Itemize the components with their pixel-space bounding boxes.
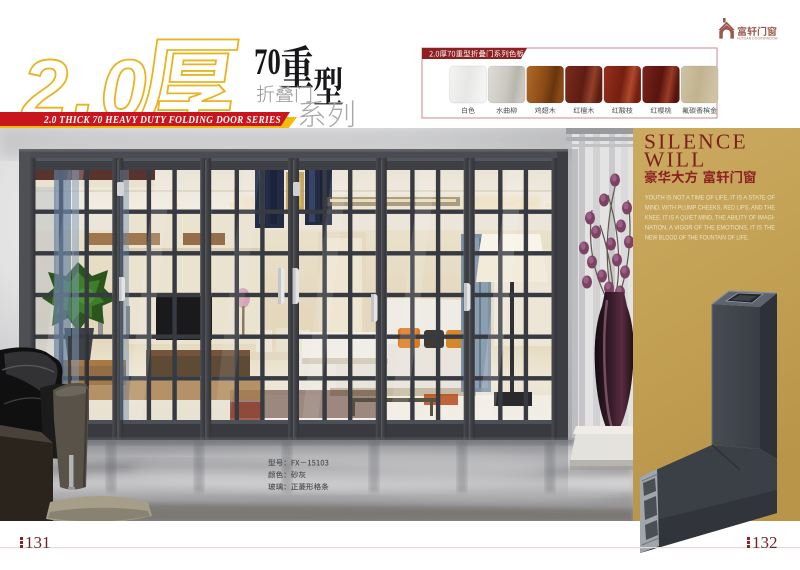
svg-text:2.0 THICK 70 HEAVY DUTY FOLDIN: 2.0 THICK 70 HEAVY DUTY FOLDING DOOR SER… [43,114,281,126]
svg-text:132: 132 [752,533,778,552]
svg-text:YOUTH IS NOT A TIME OF LIFE, I: YOUTH IS NOT A TIME OF LIFE, IT IS A STA… [645,195,775,202]
svg-text:131: 131 [25,533,51,552]
svg-text:NEW BLOOD OF THE FOUNTAIN OF L: NEW BLOOD OF THE FOUNTAIN OF LIFE. [645,235,749,242]
svg-text:MIND, WITH PLUMP CHEEKS, RED L: MIND, WITH PLUMP CHEEKS, RED LIPS, AND T… [645,205,775,212]
svg-text:KNEE. IT IS A QUIET MIND, THE: KNEE. IT IS A QUIET MIND, THE ABILITY OF… [645,215,775,222]
svg-text:70: 70 [254,41,281,82]
svg-text:FUXUAN DOORWINDOW: FUXUAN DOORWINDOW [737,36,778,40]
svg-text:NATION, A VIGOR OF THE EMOTION: NATION, A VIGOR OF THE EMOTIONS, IT IS T… [645,225,776,232]
svg-text:WILL: WILL [644,148,707,172]
